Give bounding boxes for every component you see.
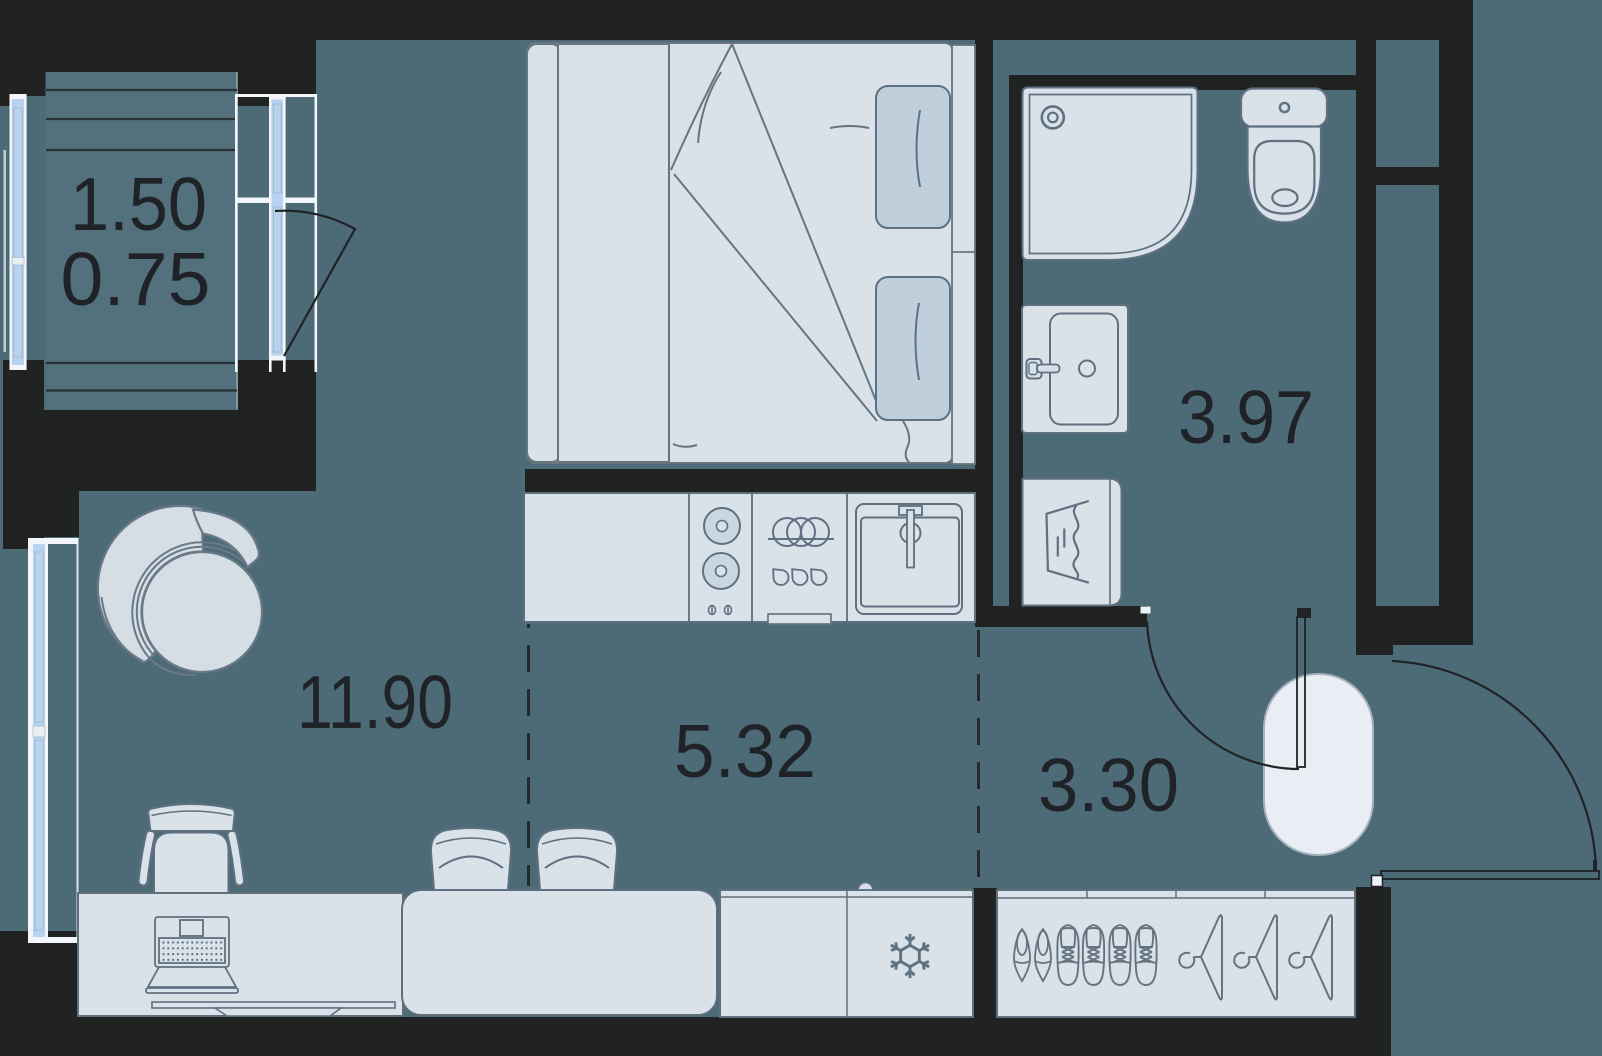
svg-text:0.75: 0.75 xyxy=(61,237,211,321)
svg-text:11.90: 11.90 xyxy=(297,660,453,744)
svg-text:3.97: 3.97 xyxy=(1178,375,1314,459)
svg-text:5.32: 5.32 xyxy=(674,709,816,793)
svg-text:3.30: 3.30 xyxy=(1038,743,1179,827)
svg-text:1.50: 1.50 xyxy=(70,162,207,246)
